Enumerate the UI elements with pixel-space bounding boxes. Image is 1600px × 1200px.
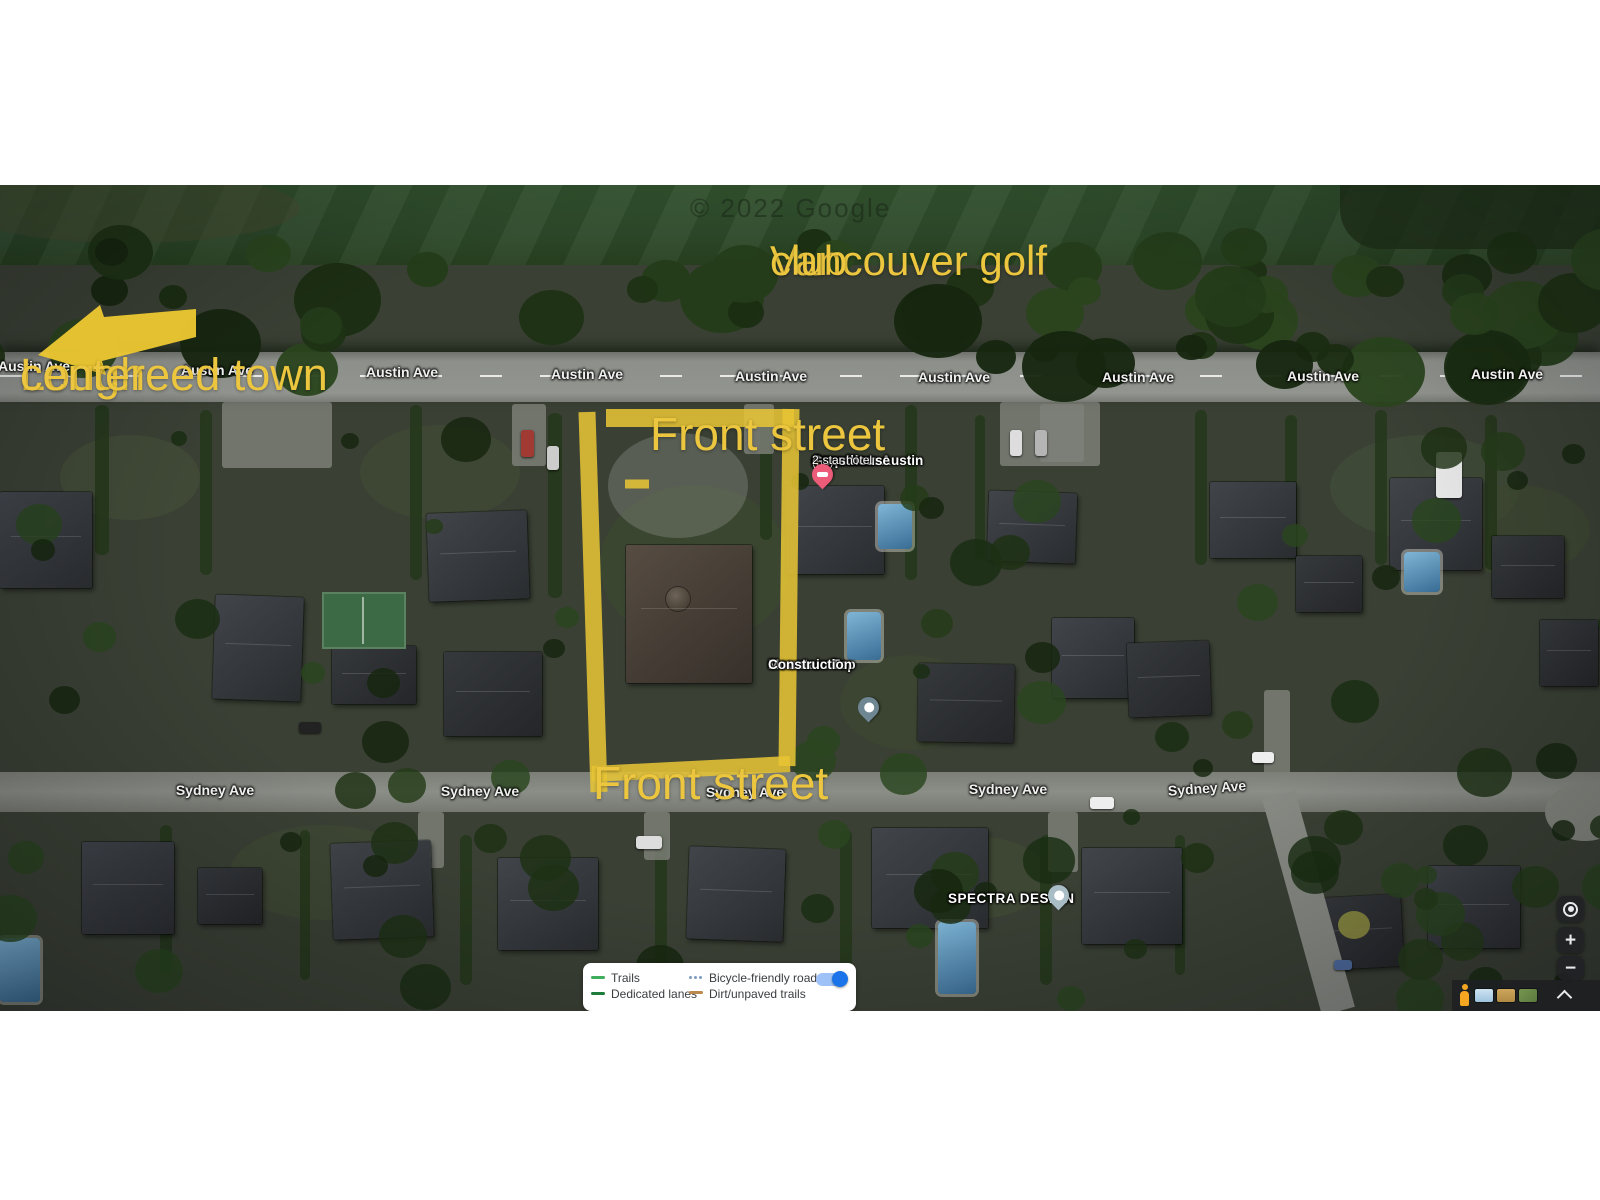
legend-item-trails: Trails (611, 970, 640, 986)
trails-swatch (591, 976, 605, 979)
dirt-trails-swatch (689, 991, 703, 994)
dedicated-lanes-swatch (591, 992, 605, 995)
google-watermark: © 2022 Google (690, 193, 891, 224)
bicycle-roads-swatch (689, 976, 692, 979)
street-label-austin-ave: Austin Ave (1102, 369, 1174, 385)
street-label-sydney-ave: Sydney Ave (969, 781, 1047, 797)
street-label-austin-ave: Austin Ave (551, 366, 623, 382)
legend-item-dedicated-lanes: Dedicated lanes (611, 986, 697, 1002)
annotation-front-street-bottom: Front street (593, 756, 828, 810)
legend-item-bicycle-roads: Bicycle-friendly roads (709, 970, 823, 986)
imagery-thumbnail[interactable] (1519, 989, 1537, 1002)
zoom-out-button[interactable]: − (1557, 956, 1584, 980)
toggle-knob (832, 971, 848, 987)
legend-item-dirt-trails: Dirt/unpaved trails (709, 986, 806, 1002)
my-location-button[interactable] (1557, 896, 1584, 922)
layer-toggle[interactable] (816, 973, 846, 986)
screenshot-page: { "annotations": { "golf_club_line1": "V… (0, 0, 1600, 1200)
street-label-austin-ave: Austin Ave (366, 364, 438, 380)
chevron-up-icon[interactable] (1557, 990, 1573, 1006)
bike-layer-legend: Trails Bicycle-friendly roads Dedicated … (583, 963, 856, 1011)
pegman-street-view-icon[interactable] (1458, 984, 1471, 1008)
street-label-austin-ave: Austin Ave (735, 368, 807, 384)
imagery-thumbnail[interactable] (1475, 989, 1493, 1002)
street-label-sydney-ave: Sydney Ave (441, 783, 519, 799)
zoom-in-button[interactable]: + (1557, 927, 1584, 953)
street-label-austin-ave: Austin Ave (1287, 368, 1359, 384)
satellite-map[interactable]: © 2022 Google Austin Ave Austin Ave Aust… (0, 185, 1600, 1011)
imagery-thumbnail[interactable] (1497, 989, 1515, 1002)
my-location-icon (1563, 902, 1578, 917)
imagery-control-bar (1452, 980, 1600, 1011)
street-label-austin-ave: Austin Ave (918, 369, 990, 385)
street-label-austin-ave: Austin Ave (1471, 366, 1543, 382)
street-label-sydney-ave: Sydney Ave (176, 782, 254, 798)
